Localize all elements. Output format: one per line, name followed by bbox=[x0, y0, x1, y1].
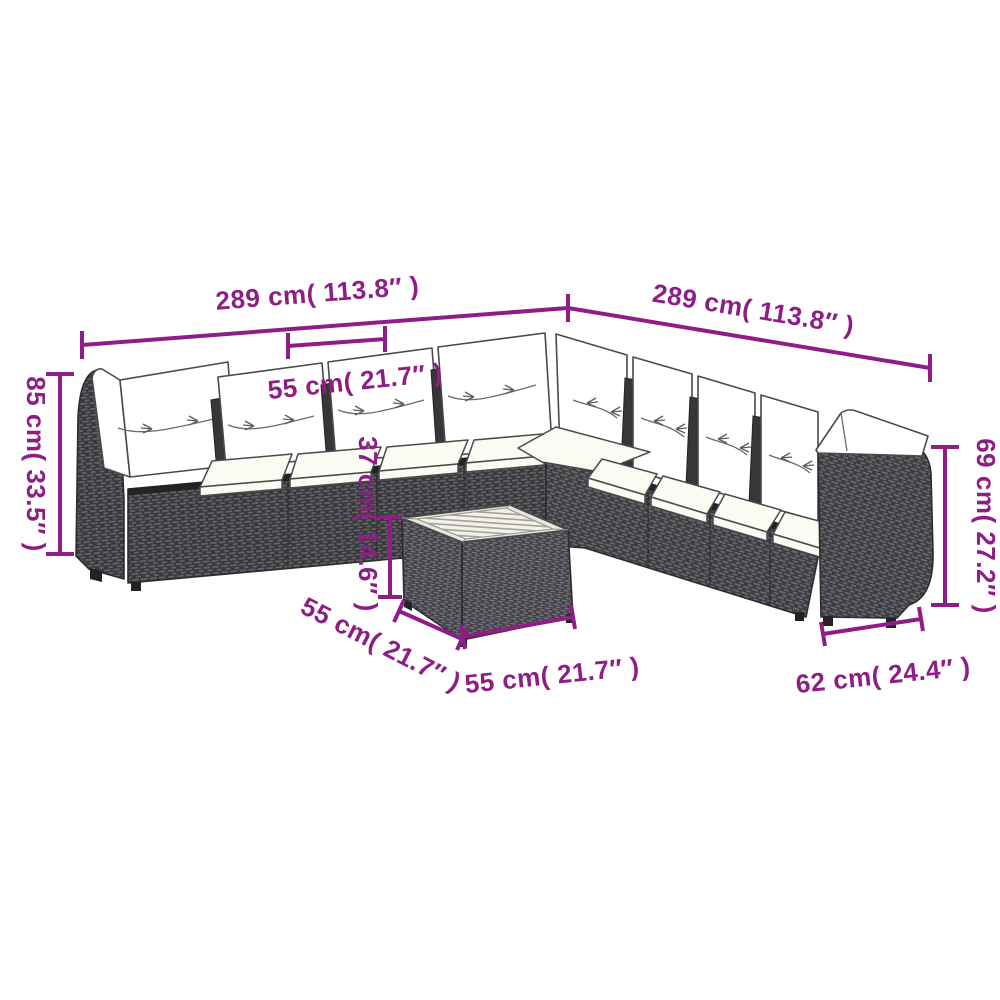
dim-label-table-width: 55 cm( 21.7″ ) bbox=[463, 651, 641, 699]
right-armrest-panel bbox=[818, 438, 933, 618]
foot bbox=[823, 616, 833, 626]
dim-armrest-height: 69 cm( 27.2″ ) bbox=[931, 438, 1000, 614]
sofa-illustration bbox=[76, 333, 933, 647]
dimension-line bbox=[288, 326, 385, 359]
dim-backrest-height: 85 cm( 33.5″ ) bbox=[21, 374, 74, 554]
dim-label-armrest-height: 69 cm( 27.2″ ) bbox=[971, 438, 1000, 614]
foot bbox=[131, 582, 141, 591]
product-dimension-diagram: 289 cm( 113.8″ ) 289 cm( 113.8″ ) 55 cm(… bbox=[0, 0, 1000, 1000]
dim-label-seat-module-depth: 62 cm( 24.4″ ) bbox=[794, 651, 972, 699]
back-cushion bbox=[761, 395, 818, 521]
dim-label-backrest-height: 85 cm( 33.5″ ) bbox=[21, 376, 51, 552]
right-armrest bbox=[816, 410, 933, 618]
dim-label-sofa-right-width: 289 cm( 113.8″ ) bbox=[650, 278, 856, 341]
dim-label-table-height: 37 cm( 14.6″ ) bbox=[353, 436, 383, 612]
diagram-canvas: 289 cm( 113.8″ ) 289 cm( 113.8″ ) 55 cm(… bbox=[0, 0, 1000, 1000]
coffee-table bbox=[395, 505, 580, 647]
table-side-front bbox=[462, 530, 573, 640]
foot bbox=[795, 612, 804, 621]
back-cushion bbox=[633, 357, 692, 488]
armrest-cushion bbox=[816, 410, 928, 456]
dim-seat-module-depth: 62 cm( 24.4″ ) bbox=[794, 607, 972, 699]
back-cushion bbox=[698, 376, 755, 503]
dim-label-sofa-left-width: 289 cm( 113.8″ ) bbox=[214, 270, 420, 316]
dimension-line bbox=[931, 447, 959, 605]
